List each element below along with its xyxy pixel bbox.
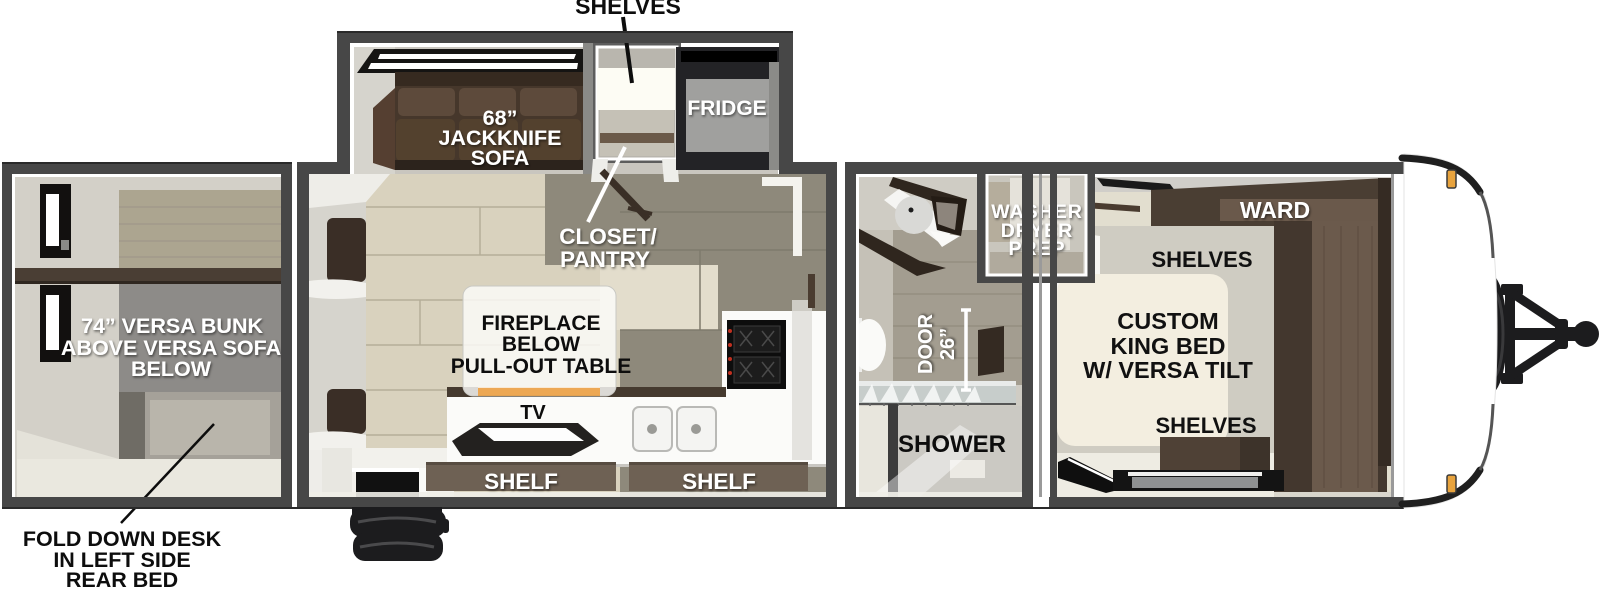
svg-text:26”: 26” [937,328,959,360]
svg-text:CLOSET/: CLOSET/ [559,224,657,249]
svg-text:REAR BED: REAR BED [66,568,178,589]
svg-text:DOOR: DOOR [915,313,937,374]
svg-text:74” VERSA BUNK: 74” VERSA BUNK [81,314,263,338]
svg-text:TV: TV [520,402,546,424]
svg-text:SHELVES: SHELVES [1151,247,1252,272]
svg-text:BELOW: BELOW [131,357,212,381]
svg-text:FIREPLACE: FIREPLACE [481,312,600,335]
svg-text:PANTRY: PANTRY [560,247,650,272]
svg-text:BELOW: BELOW [502,333,580,356]
svg-text:PULL-OUT TABLE: PULL-OUT TABLE [451,355,631,378]
svg-text:W/ VERSA TILT: W/ VERSA TILT [1083,357,1253,383]
svg-text:WARD: WARD [1240,197,1310,223]
svg-text:SHELVES: SHELVES [1155,413,1256,438]
svg-text:SOFA: SOFA [471,146,530,170]
svg-text:SHELVES: SHELVES [575,0,681,19]
svg-text:SHOWER: SHOWER [898,431,1006,458]
svg-text:SHELF: SHELF [484,469,558,494]
svg-text:CUSTOM: CUSTOM [1117,308,1218,334]
svg-text:SHELF: SHELF [682,469,756,494]
svg-text:FRIDGE: FRIDGE [687,97,766,120]
svg-text:KING BED: KING BED [1111,333,1226,359]
